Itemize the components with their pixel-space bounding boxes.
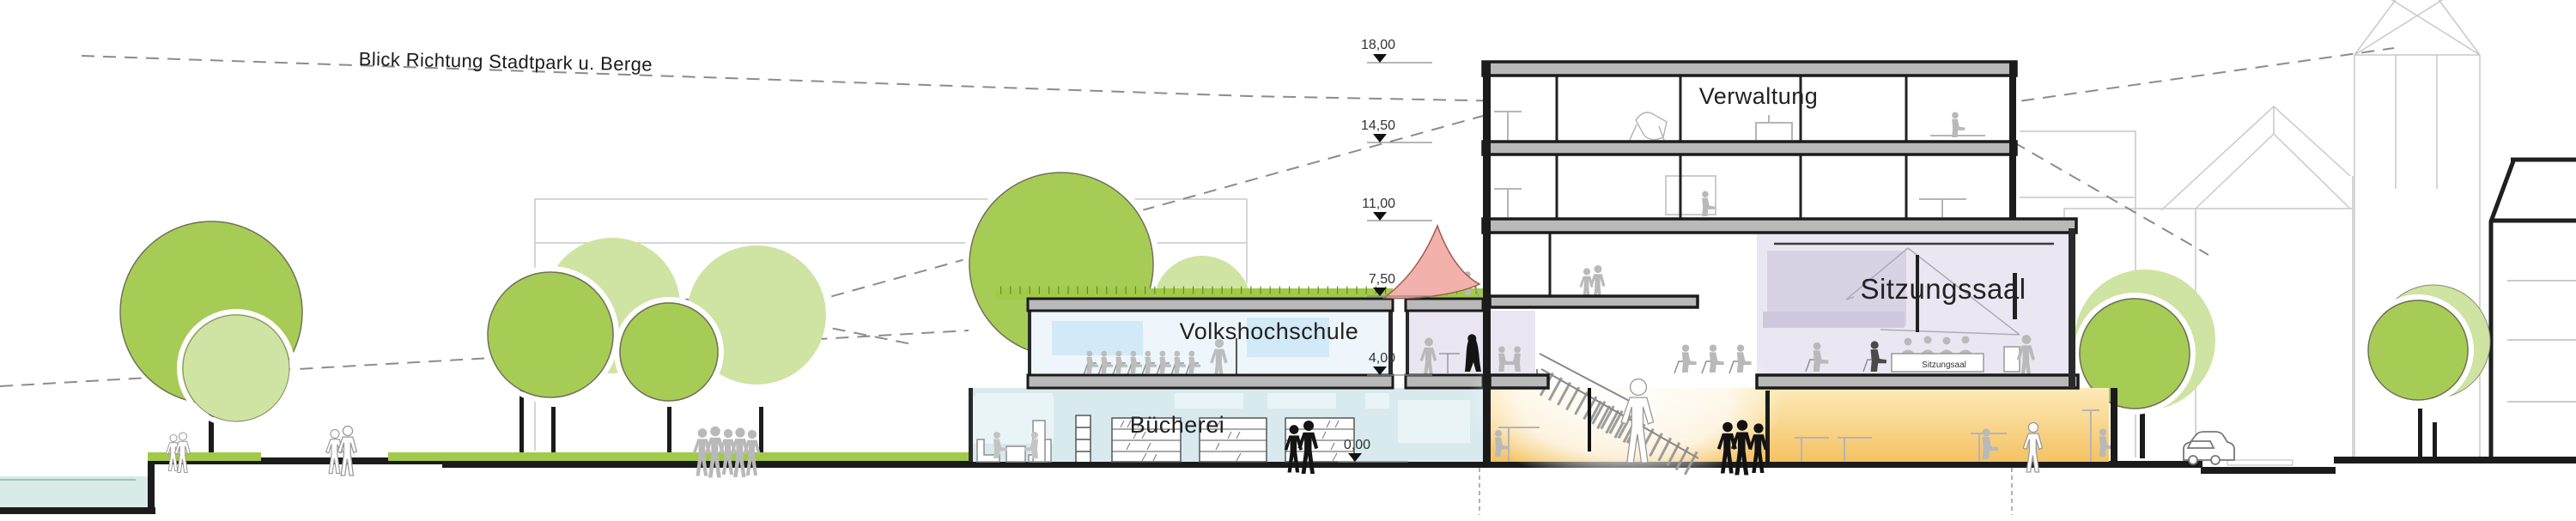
elevation-label-11: 11,00 xyxy=(1334,197,1395,212)
people-group xyxy=(693,427,761,478)
roof-slab xyxy=(1483,62,2016,76)
floor-slab xyxy=(1490,375,1548,388)
vhs-window xyxy=(1052,321,1143,355)
elevation-label-0: 0,00 xyxy=(1309,438,1370,453)
room-label-volkshochschule: Volkshochschule xyxy=(1180,320,1359,343)
street-trees-right xyxy=(2075,270,2490,458)
floor-slab xyxy=(1757,375,2078,388)
park-trees xyxy=(120,221,826,465)
elevation-label-4: 4,00 xyxy=(1334,351,1395,367)
entrance-sail xyxy=(1384,226,1479,299)
tree-crown xyxy=(620,303,718,401)
car xyxy=(2184,432,2234,464)
tree-crown-light xyxy=(183,315,289,421)
roof-slab xyxy=(1028,299,1393,311)
architectural-section-canvas: Blick Richtung Stadtpark u. Berge Verwal… xyxy=(0,0,2576,521)
grass-strip xyxy=(388,452,970,461)
room-label-verwaltung: Verwaltung xyxy=(1699,85,1819,108)
street-building-right xyxy=(2491,159,2576,457)
view-line-radiate-up xyxy=(1958,48,2394,110)
floor-slab xyxy=(1483,142,2016,154)
section-drawing xyxy=(0,0,2576,521)
elevation-label-14-5: 14,50 xyxy=(1334,118,1395,134)
road-line xyxy=(2201,467,2336,474)
floor-slab xyxy=(1028,375,1393,388)
wall xyxy=(2111,388,2117,462)
pond-water xyxy=(0,476,149,508)
tree-crown xyxy=(2368,300,2468,400)
floor-slab xyxy=(1483,219,2076,233)
room-label-sitzungssaal: Sitzungssaal xyxy=(1860,275,2026,303)
roof-slab xyxy=(1406,299,1483,311)
library-window xyxy=(1398,400,1470,443)
wall xyxy=(1483,62,1491,463)
level-triangle xyxy=(1373,54,1387,63)
level-triangle xyxy=(1373,134,1387,142)
ground-line xyxy=(2334,457,2576,463)
floor-slab xyxy=(1490,296,1698,307)
elevation-label-7-5: 7,50 xyxy=(1334,272,1395,288)
grass-strip xyxy=(148,452,261,461)
mezzanine-room xyxy=(1491,311,1535,375)
wall xyxy=(2009,62,2016,219)
road-marking xyxy=(2227,460,2293,465)
table-label-sitzungssaal: Sitzungsaal xyxy=(1922,361,1966,370)
wall xyxy=(2069,228,2075,388)
room-label-buecherei: Bücherei xyxy=(1130,414,1225,437)
tree-crown xyxy=(488,272,613,397)
level-triangle xyxy=(1373,212,1387,221)
elevation-label-18: 18,00 xyxy=(1334,38,1395,53)
